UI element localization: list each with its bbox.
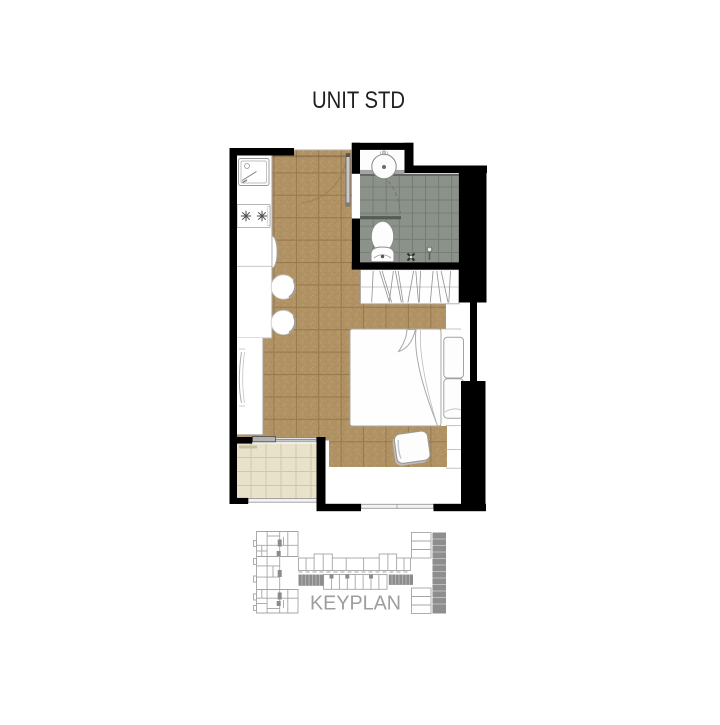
svg-text:UNIT STD: UNIT STD [312,87,405,114]
svg-text:KEYPLAN: KEYPLAN [310,593,401,615]
